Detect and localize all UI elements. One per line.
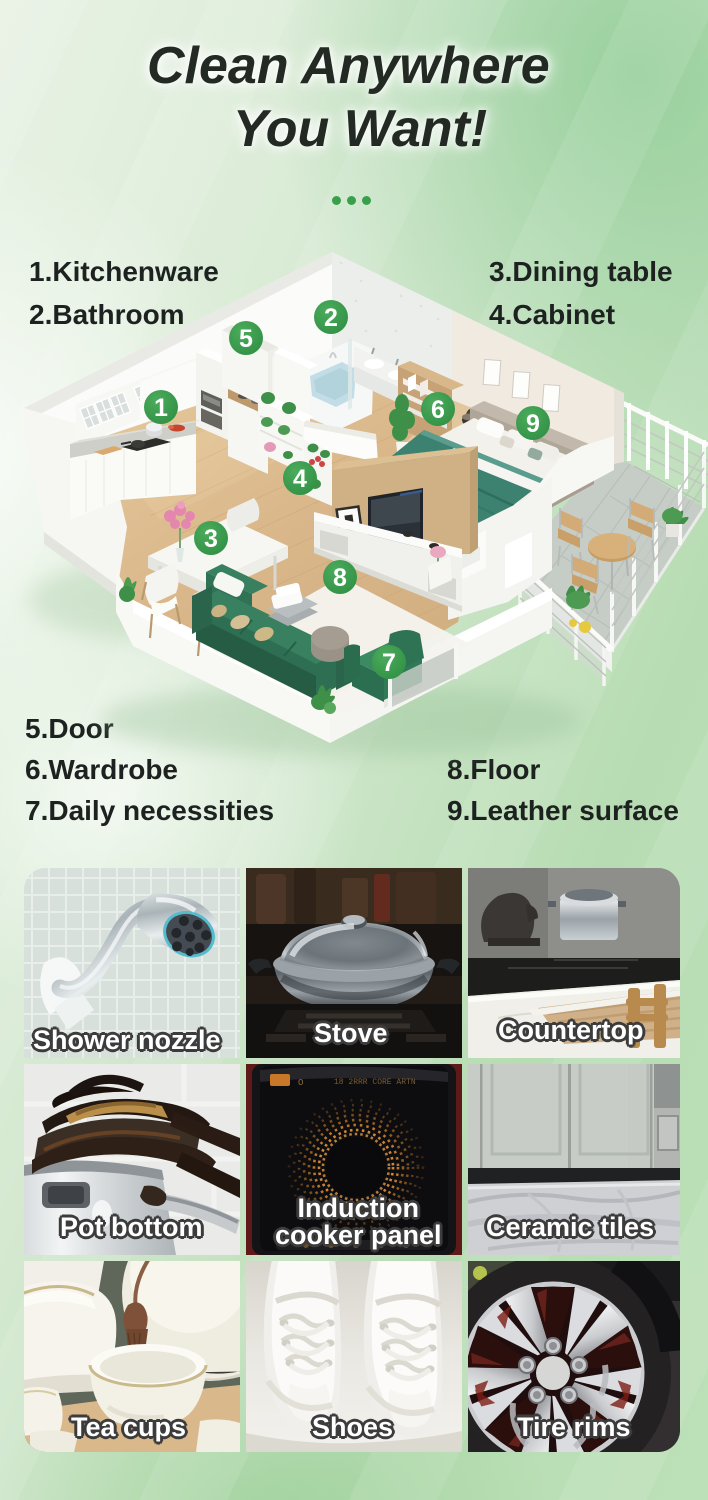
svg-text:O: O [298,1078,303,1088]
svg-text:4: 4 [293,465,307,493]
svg-text:9: 9 [526,410,540,438]
svg-text:1: 1 [154,394,168,422]
svg-text:18 2RRR CORE ARTN: 18 2RRR CORE ARTN [334,1078,416,1087]
svg-text:7: 7 [382,649,396,677]
svg-text:5: 5 [239,325,253,353]
svg-text:3: 3 [204,525,218,553]
svg-text:6: 6 [431,396,445,424]
svg-text:2: 2 [324,304,338,332]
svg-text:8: 8 [333,564,347,592]
